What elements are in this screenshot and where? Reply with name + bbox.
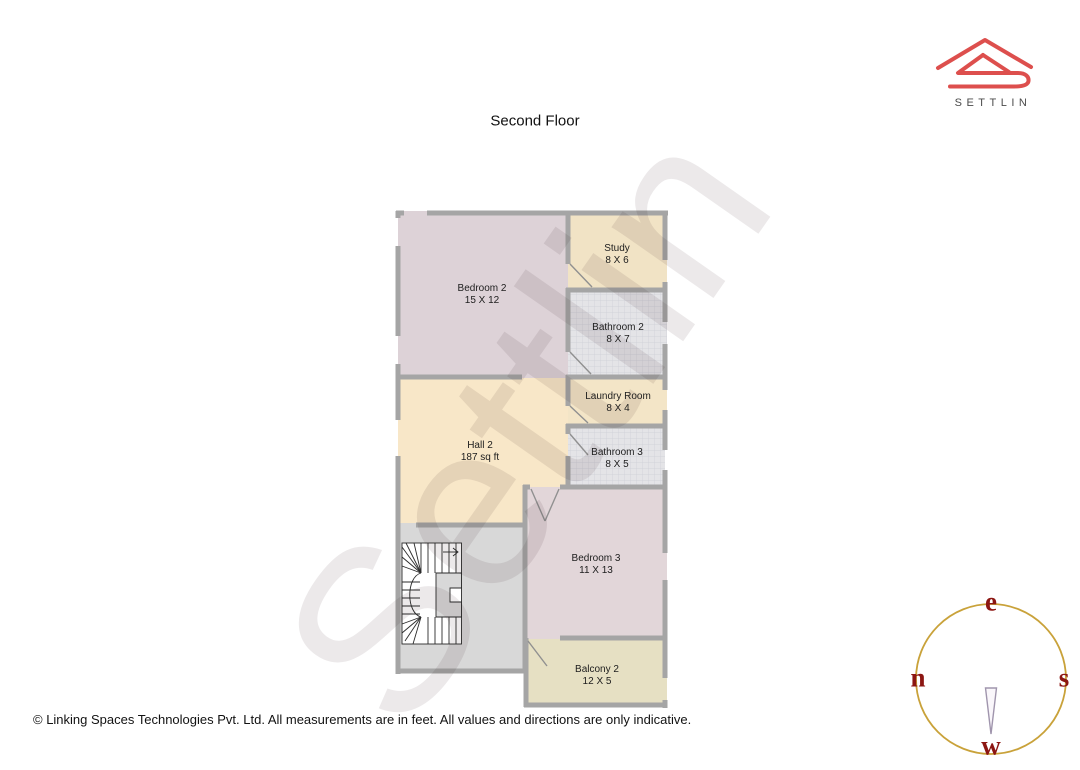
room-dims: 8 X 5 — [591, 459, 643, 471]
compass-label-north: n — [910, 663, 925, 694]
room-dims: 8 X 4 — [585, 403, 651, 415]
compass-label-west: w — [981, 731, 1001, 762]
room-label-study: Study 8 X 6 — [604, 243, 630, 267]
room-name: Study — [604, 243, 630, 255]
room-dims: 8 X 6 — [604, 255, 630, 267]
room-dims: 12 X 5 — [575, 676, 619, 688]
room-dims: 187 sq ft — [461, 452, 499, 464]
room-name: Hall 2 — [461, 440, 499, 452]
room-label-balcony2: Balcony 2 12 X 5 — [575, 664, 619, 688]
room-dims: 11 X 13 — [572, 565, 621, 577]
room-name: Bathroom 3 — [591, 447, 643, 459]
room-label-bedroom3: Bedroom 3 11 X 13 — [572, 553, 621, 577]
room-name: Bedroom 2 — [458, 283, 507, 295]
compass-label-east: e — [985, 587, 997, 618]
room-dims: 8 X 7 — [592, 334, 644, 346]
room-name: Laundry Room — [585, 391, 651, 403]
compass-needle-icon — [986, 688, 997, 734]
room-dims: 15 X 12 — [458, 295, 507, 307]
brand-wordmark: SETTLIN — [955, 97, 1032, 109]
copyright-disclaimer: © Linking Spaces Technologies Pvt. Ltd. … — [33, 712, 691, 727]
room-label-bedroom2: Bedroom 2 15 X 12 — [458, 283, 507, 307]
compass-label-south: s — [1059, 663, 1070, 694]
room-label-laundry-room: Laundry Room 8 X 4 — [585, 391, 651, 415]
room-name: Bathroom 2 — [592, 322, 644, 334]
settlin-logo-icon — [938, 40, 1031, 87]
room-label-hall2: Hall 2 187 sq ft — [461, 440, 499, 464]
page-title: Second Floor — [490, 113, 579, 130]
staircase — [402, 543, 462, 644]
room-name: Bedroom 3 — [572, 553, 621, 565]
room-label-bathroom3: Bathroom 3 8 X 5 — [591, 447, 643, 471]
room-name: Balcony 2 — [575, 664, 619, 676]
room-label-bathroom2: Bathroom 2 8 X 7 — [592, 322, 644, 346]
